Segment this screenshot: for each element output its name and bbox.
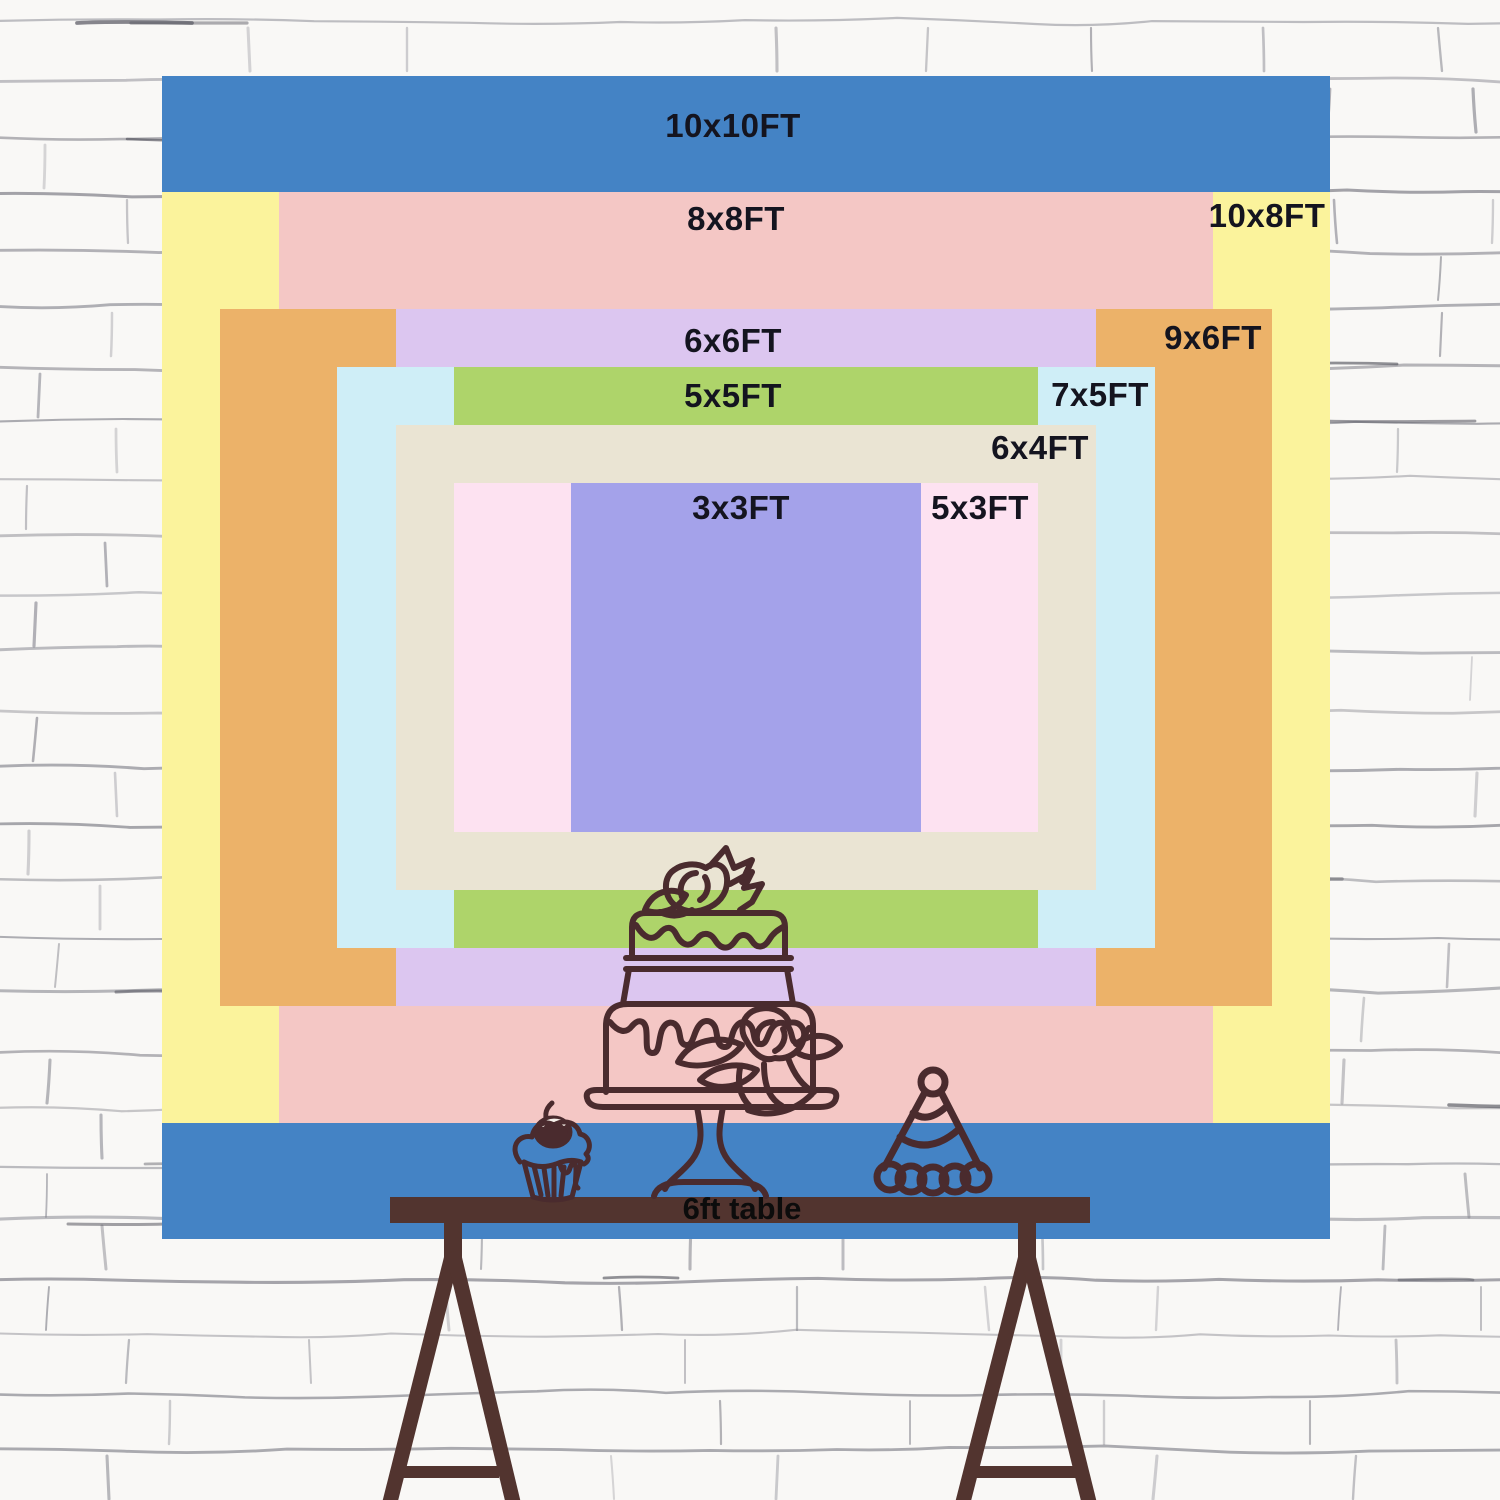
stage: 10x10FT10x8FT8x8FT9x6FT6x6FT7x5FT5x5FT6x… <box>0 0 1500 1500</box>
size-rect-3x3 <box>571 483 921 832</box>
backdrop-size-chart <box>162 76 1330 1239</box>
table-label: 6ft table <box>683 1191 802 1227</box>
